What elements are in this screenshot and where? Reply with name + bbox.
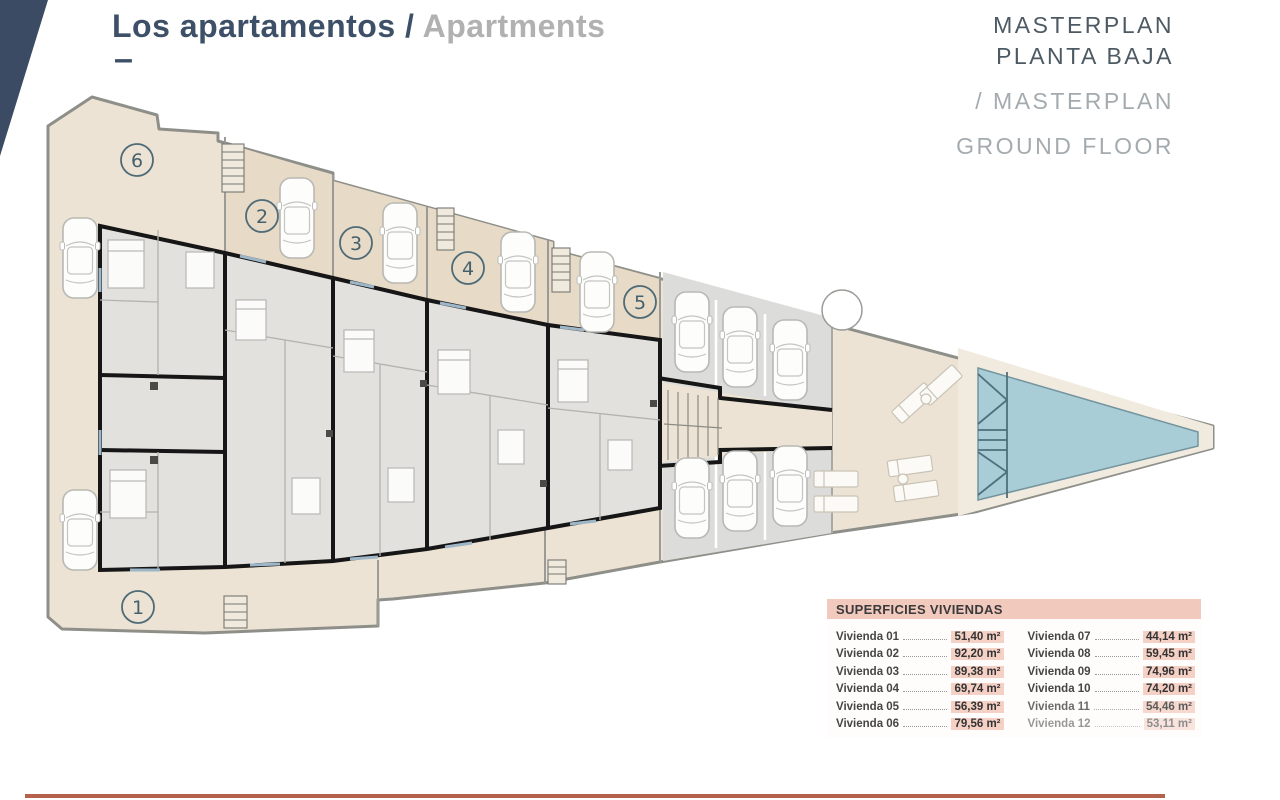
page: Los apartamentos / Apartments – MASTERPL…: [0, 0, 1280, 800]
car-icon: [577, 252, 617, 332]
side-table: [921, 394, 931, 404]
sun-lounger-icon: [814, 496, 858, 512]
areas-table: SUPERFICIES VIVIENDAS Vivienda 0151,40 m…: [827, 599, 1201, 738]
side-table: [898, 474, 908, 484]
svg-text:3[interactable]: 3: [350, 233, 362, 255]
car-icon: [380, 203, 420, 283]
svg-text:4[interactable]: 4: [462, 258, 474, 280]
table-row: Vivienda 0679,56 m²: [836, 713, 1004, 731]
table-row: Vivienda 0744,14 m²: [1028, 625, 1196, 643]
sun-lounger-icon: [814, 471, 858, 487]
car-icon: [60, 490, 100, 570]
svg-text:5[interactable]: 5: [634, 292, 646, 314]
footer-accent-line: [25, 794, 1165, 798]
car-icon: [770, 320, 810, 400]
car-icon: [672, 292, 712, 372]
table-row: Vivienda 0556,39 m²: [836, 695, 1004, 713]
areas-table-col2: Vivienda 0744,14 m² Vivienda 0859,45 m² …: [1028, 625, 1196, 730]
table-row: Vivienda 0974,96 m²: [1028, 660, 1196, 678]
car-icon: [277, 178, 317, 258]
table-row: Vivienda 1253,11 m²: [1028, 713, 1196, 731]
table-row: Vivienda 0292,20 m²: [836, 643, 1004, 661]
table-row: Vivienda 1074,20 m²: [1028, 678, 1196, 696]
table-row: Vivienda 0151,40 m²: [836, 625, 1004, 643]
areas-table-col1: Vivienda 0151,40 m² Vivienda 0292,20 m² …: [836, 625, 1004, 730]
car-icon: [498, 232, 538, 312]
table-row: Vivienda 0859,45 m²: [1028, 643, 1196, 661]
table-row: Vivienda 1154,46 m²: [1028, 695, 1196, 713]
car-icon: [720, 307, 760, 387]
car-icon: [770, 446, 810, 526]
car-icon: [720, 451, 760, 531]
car-icon: [60, 218, 100, 298]
svg-text:6[interactable]: 6: [131, 150, 143, 172]
svg-text:1[interactable]: 1: [132, 597, 144, 619]
areas-table-title: SUPERFICIES VIVIENDAS: [827, 599, 1201, 619]
svg-text:2[interactable]: 2: [256, 206, 268, 228]
terrace-entry-arc: [822, 290, 862, 330]
car-icon: [672, 458, 712, 538]
table-row: Vivienda 0469,74 m²: [836, 678, 1004, 696]
table-row: Vivienda 0389,38 m²: [836, 660, 1004, 678]
